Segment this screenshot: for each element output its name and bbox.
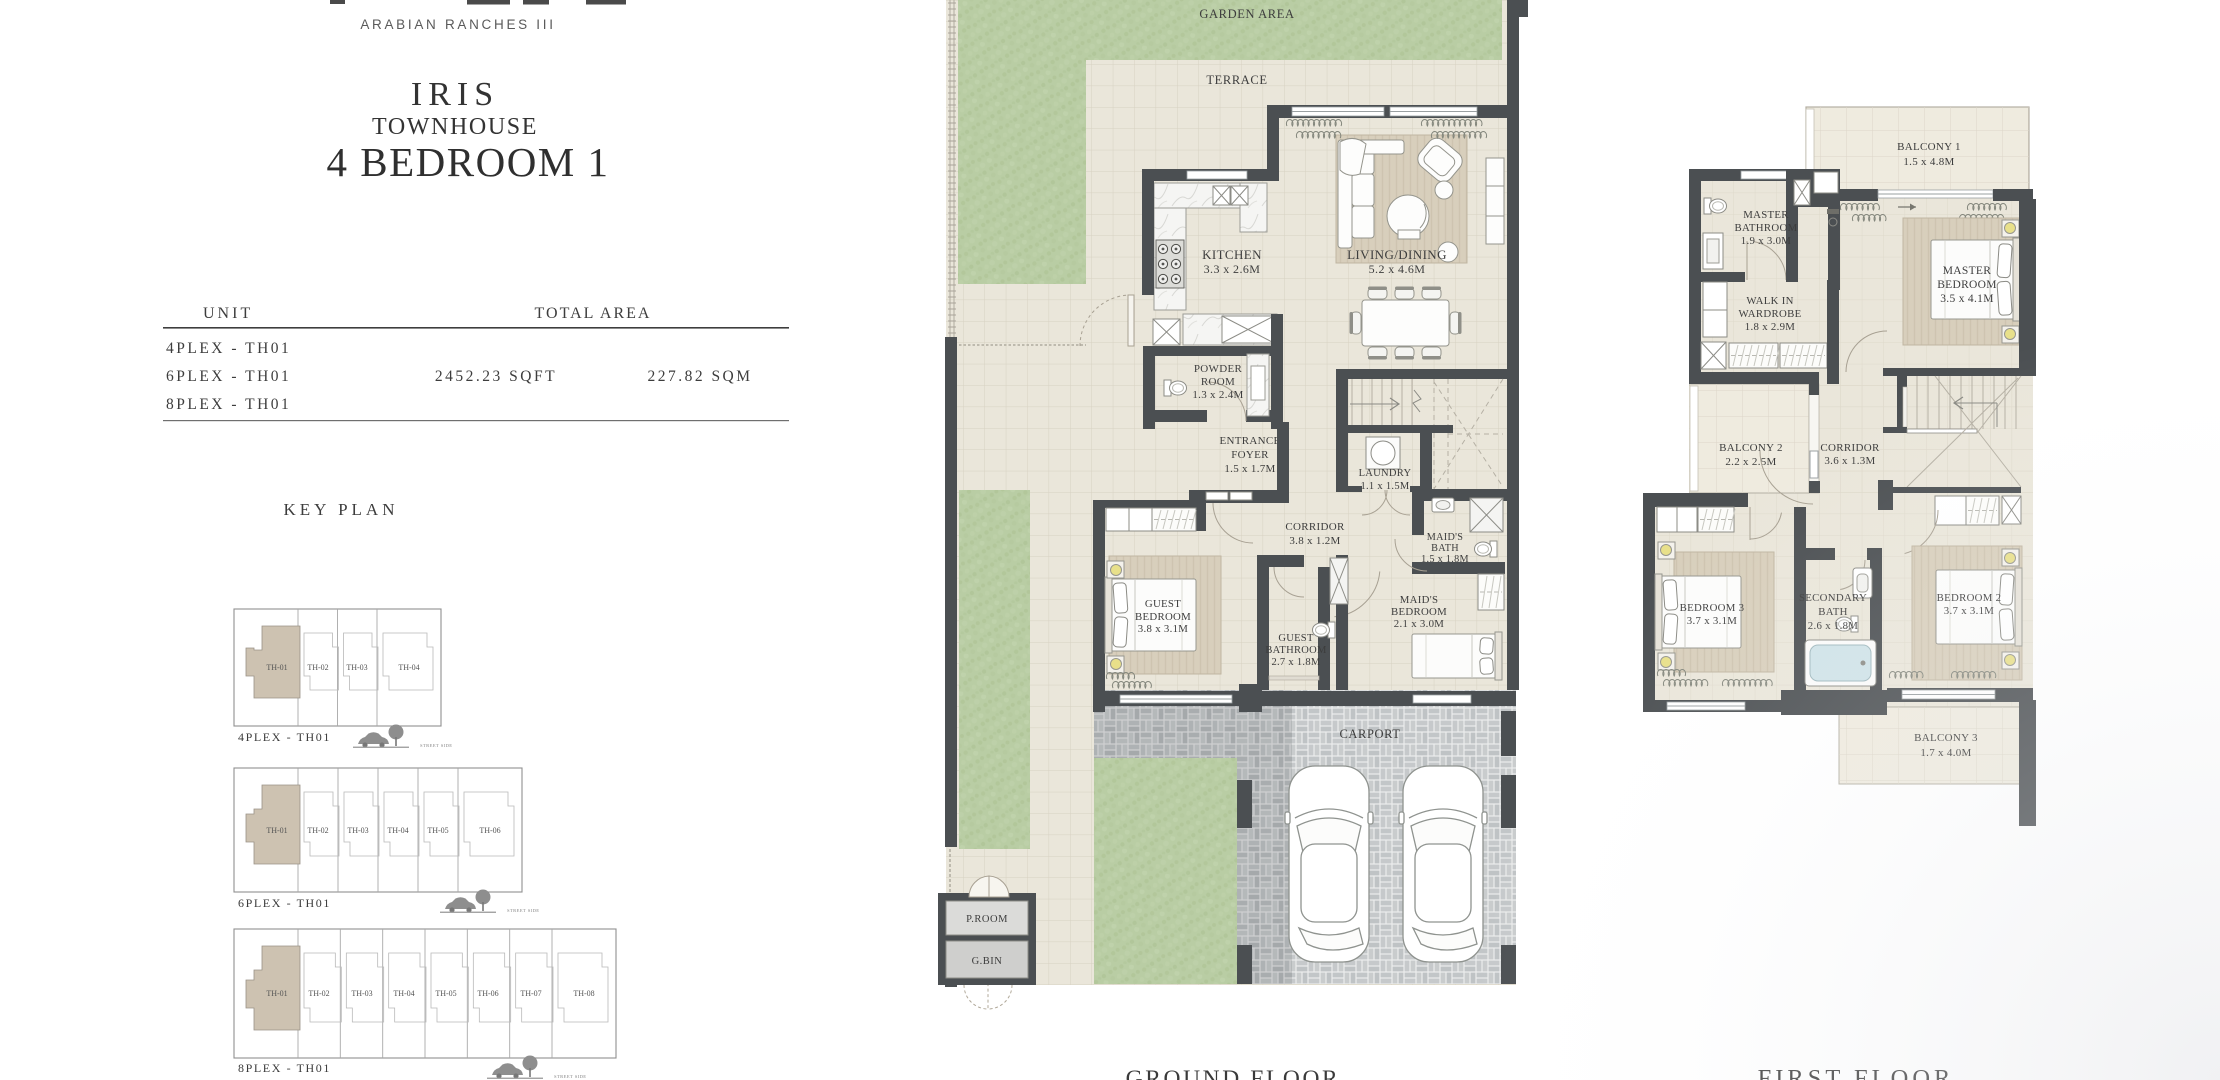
svg-text:BATH: BATH bbox=[1431, 543, 1459, 554]
svg-text:ENTRANCE: ENTRANCE bbox=[1219, 435, 1280, 447]
svg-text:TH-08: TH-08 bbox=[573, 989, 594, 998]
svg-text:POWDER: POWDER bbox=[1194, 363, 1243, 375]
svg-text:G.BIN: G.BIN bbox=[972, 956, 1003, 967]
svg-text:TH-03: TH-03 bbox=[347, 826, 368, 835]
svg-text:KEY PLAN: KEY PLAN bbox=[284, 500, 399, 519]
svg-text:1.1 x 1.5M: 1.1 x 1.5M bbox=[1360, 481, 1409, 492]
svg-text:1.9 x 3.0M: 1.9 x 3.0M bbox=[1741, 235, 1791, 247]
svg-text:BATHROOM: BATHROOM bbox=[1265, 645, 1327, 656]
svg-text:UNIT: UNIT bbox=[203, 305, 253, 322]
svg-text:TH-02: TH-02 bbox=[307, 663, 328, 672]
svg-text:WALK IN: WALK IN bbox=[1746, 295, 1793, 307]
svg-text:2.1 x 3.0M: 2.1 x 3.0M bbox=[1394, 618, 1444, 630]
svg-text:TH-04: TH-04 bbox=[387, 826, 408, 835]
svg-text:CARPORT: CARPORT bbox=[1339, 727, 1400, 741]
svg-text:TH-02: TH-02 bbox=[307, 826, 328, 835]
svg-text:TH-03: TH-03 bbox=[351, 989, 372, 998]
svg-text:MASTER: MASTER bbox=[1743, 209, 1789, 221]
svg-text:BALCONY 1: BALCONY 1 bbox=[1897, 141, 1961, 153]
svg-text:TH-05: TH-05 bbox=[427, 826, 448, 835]
svg-text:8PLEX - TH01: 8PLEX - TH01 bbox=[166, 396, 291, 413]
svg-text:WARDROBE: WARDROBE bbox=[1739, 308, 1802, 320]
svg-text:BEDROOM: BEDROOM bbox=[1135, 611, 1191, 623]
svg-text:MASTER: MASTER bbox=[1943, 265, 1991, 277]
svg-text:MAID'S: MAID'S bbox=[1400, 594, 1439, 606]
svg-text:3.8 x 3.1M: 3.8 x 3.1M bbox=[1138, 623, 1188, 635]
svg-text:KITCHEN: KITCHEN bbox=[1202, 247, 1262, 262]
svg-text:FOYER: FOYER bbox=[1231, 449, 1269, 461]
svg-text:5.2 x 4.6M: 5.2 x 4.6M bbox=[1369, 262, 1426, 276]
svg-text:8PLEX - TH01: 8PLEX - TH01 bbox=[238, 1061, 331, 1075]
svg-text:TH-03: TH-03 bbox=[346, 663, 367, 672]
svg-text:IRIS: IRIS bbox=[411, 76, 499, 113]
svg-text:TH-04: TH-04 bbox=[398, 663, 419, 672]
svg-text:4 BEDROOM 1: 4 BEDROOM 1 bbox=[326, 139, 609, 185]
svg-text:GUEST: GUEST bbox=[1278, 633, 1314, 644]
svg-text:TH-01: TH-01 bbox=[266, 663, 287, 672]
svg-text:GUEST: GUEST bbox=[1145, 598, 1181, 610]
svg-text:2.7 x 1.8M: 2.7 x 1.8M bbox=[1271, 657, 1320, 668]
svg-text:BEDROOM: BEDROOM bbox=[1391, 606, 1447, 618]
svg-text:TH-01: TH-01 bbox=[266, 826, 287, 835]
svg-text:STREET SIDE: STREET SIDE bbox=[420, 743, 453, 748]
svg-text:TH-07: TH-07 bbox=[520, 989, 541, 998]
svg-text:1.3 x 2.4M: 1.3 x 2.4M bbox=[1192, 389, 1243, 401]
svg-text:CORRIDOR: CORRIDOR bbox=[1285, 521, 1345, 533]
svg-text:1.5 x 4.8M: 1.5 x 4.8M bbox=[1903, 156, 1954, 168]
svg-text:4PLEX - TH01: 4PLEX - TH01 bbox=[238, 730, 331, 744]
svg-text:BATHROOM: BATHROOM bbox=[1735, 222, 1798, 234]
svg-text:6PLEX - TH01: 6PLEX - TH01 bbox=[238, 896, 331, 910]
svg-text:TERRACE: TERRACE bbox=[1206, 73, 1267, 87]
svg-text:ROOM: ROOM bbox=[1201, 376, 1235, 388]
svg-text:BEDROOM: BEDROOM bbox=[1937, 279, 1997, 291]
svg-text:TOWNHOUSE: TOWNHOUSE bbox=[372, 114, 538, 140]
svg-text:LAUNDRY: LAUNDRY bbox=[1359, 468, 1412, 479]
svg-text:3.8 x 1.2M: 3.8 x 1.2M bbox=[1289, 535, 1340, 547]
svg-text:GARDEN AREA: GARDEN AREA bbox=[1199, 7, 1294, 21]
svg-text:STREET SIDE: STREET SIDE bbox=[554, 1074, 587, 1079]
svg-text:TH-01: TH-01 bbox=[266, 989, 287, 998]
svg-text:ARABIAN RANCHES III: ARABIAN RANCHES III bbox=[360, 17, 555, 32]
svg-text:3.5 x 4.1M: 3.5 x 4.1M bbox=[1940, 293, 1993, 305]
svg-text:2452.23 SQFT: 2452.23 SQFT bbox=[435, 368, 557, 385]
svg-text:GROUND FLOOR: GROUND FLOOR bbox=[1126, 1066, 1341, 1080]
svg-text:STREET SIDE: STREET SIDE bbox=[507, 908, 540, 913]
svg-text:TH-04: TH-04 bbox=[393, 989, 414, 998]
svg-text:TOTAL AREA: TOTAL AREA bbox=[535, 305, 652, 322]
svg-text:227.82 SQM: 227.82 SQM bbox=[647, 368, 752, 385]
svg-text:6PLEX - TH01: 6PLEX - TH01 bbox=[166, 368, 291, 385]
svg-text:TH-02: TH-02 bbox=[308, 989, 329, 998]
svg-text:MAID'S: MAID'S bbox=[1427, 532, 1464, 543]
svg-text:LIVING/DINING: LIVING/DINING bbox=[1347, 247, 1447, 262]
svg-text:4PLEX - TH01: 4PLEX - TH01 bbox=[166, 340, 291, 357]
svg-text:1.5 x 1.7M: 1.5 x 1.7M bbox=[1224, 463, 1275, 475]
svg-text:TH-05: TH-05 bbox=[435, 989, 456, 998]
svg-text:TH-06: TH-06 bbox=[477, 989, 498, 998]
svg-text:3.3 x 2.6M: 3.3 x 2.6M bbox=[1204, 262, 1261, 276]
svg-text:TH-06: TH-06 bbox=[479, 826, 500, 835]
svg-text:P.ROOM: P.ROOM bbox=[966, 914, 1008, 925]
